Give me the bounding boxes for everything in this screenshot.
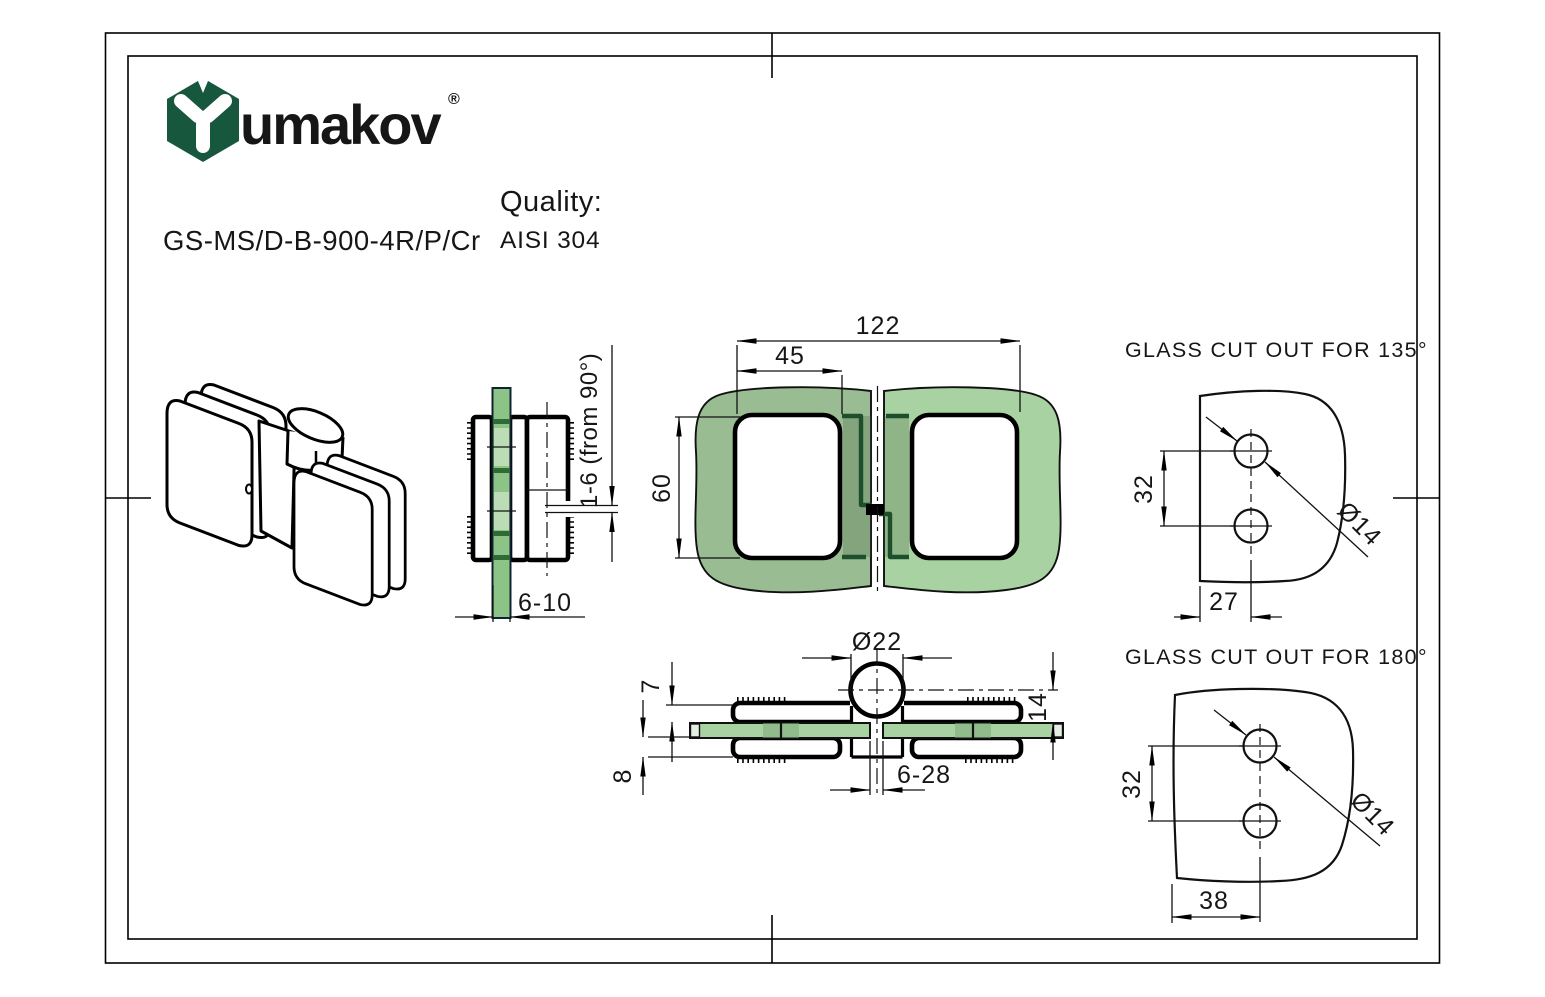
svg-text:38: 38 (1199, 887, 1229, 915)
dim-180-hole-diameter: Ø14 (1214, 710, 1400, 846)
svg-text:8: 8 (609, 769, 637, 784)
svg-text:14: 14 (1024, 692, 1052, 722)
svg-text:27: 27 (1209, 588, 1239, 616)
side-left-plate (473, 417, 492, 560)
svg-text:Ø14: Ø14 (1332, 496, 1387, 551)
dim-135-hole-spacing: 32 (1130, 451, 1236, 526)
cutout-180-title: GLASS CUT OUT FOR 180° (1125, 645, 1428, 669)
svg-text:6-28: 6-28 (897, 761, 951, 789)
cutout-180-glass (1174, 689, 1354, 882)
svg-text:60: 60 (648, 473, 676, 503)
quality-label: Quality: (500, 186, 602, 218)
grub-screw (246, 485, 252, 494)
front-view: 122 45 60 (648, 312, 1061, 592)
svg-text:1-6 (from 90°): 1-6 (from 90°) (576, 353, 603, 508)
dim-axis-to-glass: 14 (1024, 652, 1063, 760)
svg-text:32: 32 (1130, 474, 1158, 504)
left-clamp-face (167, 401, 252, 547)
dim-adjustment: 1-6 (from 90°) (576, 345, 612, 562)
svg-text:122: 122 (856, 312, 901, 340)
svg-text:45: 45 (775, 342, 805, 370)
dim-135-hole-diameter: Ø14 (1206, 417, 1387, 557)
dim-plate-thickness-bottom: 8 (609, 700, 733, 795)
section-bottom-plate-right (912, 738, 1021, 757)
dim-180-hole-spacing: 32 (1118, 746, 1245, 821)
svg-text:32: 32 (1118, 769, 1146, 799)
section-glass-right (883, 723, 1063, 738)
side-view: 1-6 (from 90°) 6-10 (455, 345, 618, 622)
isometric-view (167, 385, 405, 606)
dim-plate-thickness-top: 7 (637, 662, 733, 762)
svg-text:7: 7 (637, 679, 665, 694)
section-view: Ø22 7 8 14 6-28 (609, 628, 1063, 795)
dim-135-edge-distance: 27 (1174, 586, 1282, 622)
section-bottom-plate-left (733, 738, 840, 757)
brand-logo: umakov ® (167, 75, 460, 162)
front-right-plate (912, 415, 1017, 558)
cutout-135-glass (1200, 391, 1345, 582)
title-block: Quality: GS-MS/D-B-900-4R/P/Cr AISI 304 (163, 186, 602, 256)
front-left-plate (735, 415, 840, 558)
brand-name: umakov (240, 93, 441, 156)
right-clamp-face (294, 471, 372, 605)
svg-text:Ø14: Ø14 (1345, 786, 1400, 841)
drawing-sheet: umakov ® Quality: GS-MS/D-B-900-4R/P/Cr … (0, 0, 1545, 997)
dim-180-edge-distance: 38 (1172, 884, 1260, 923)
center-latch-notch (866, 504, 884, 515)
svg-text:6-10: 6-10 (518, 589, 572, 617)
side-right-plate (510, 417, 527, 560)
umakov-hexagon-icon (167, 75, 239, 162)
product-code: GS-MS/D-B-900-4R/P/Cr (163, 225, 481, 256)
section-glass-left (690, 723, 870, 738)
dim-glass-thickness: 6-10 (455, 585, 585, 622)
quality-value: AISI 304 (500, 227, 600, 254)
registered-mark: ® (448, 91, 460, 108)
cutout-135-view: GLASS CUT OUT FOR 135° 32 27 Ø14 (1125, 338, 1428, 622)
cutout-135-title: GLASS CUT OUT FOR 135° (1125, 338, 1428, 362)
svg-text:Ø22: Ø22 (852, 628, 902, 656)
cutout-180-view: GLASS CUT OUT FOR 180° 32 38 Ø14 (1118, 645, 1428, 923)
